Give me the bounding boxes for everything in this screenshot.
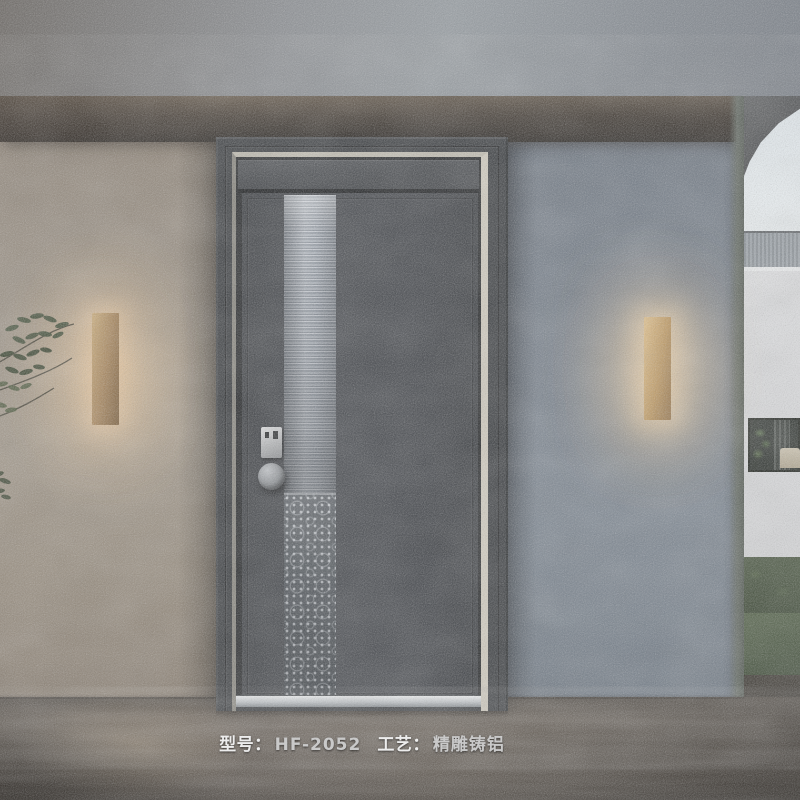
canopy-shadow-band <box>0 96 744 142</box>
caption: 型号：HF-2052工艺：精雕铸铝 <box>62 730 662 755</box>
craft-label: 工艺： <box>377 735 430 755</box>
transom-panel <box>238 160 479 189</box>
background-roofline <box>744 231 800 271</box>
background-house-wall <box>744 271 800 557</box>
craft-value: 精雕铸铝 <box>433 735 505 755</box>
threshold <box>236 695 481 707</box>
lock-slot <box>273 431 278 439</box>
window-plant <box>752 424 774 464</box>
entry-door-product-photo: 型号：HF-2052工艺：精雕铸铝 <box>0 0 800 800</box>
cast-pattern-panel <box>284 493 336 697</box>
porch-ceiling <box>0 0 800 98</box>
smart-lock <box>261 427 282 458</box>
door-knob <box>258 463 285 490</box>
model-value: HF-2052 <box>275 735 362 755</box>
window-sofa <box>780 448 800 468</box>
glass-strip <box>284 195 336 697</box>
wall-corner-edge <box>729 96 745 704</box>
ribbed-glass <box>284 195 336 493</box>
wall-sconce-right <box>644 317 671 420</box>
background-grass <box>744 613 800 677</box>
door-leaf <box>242 193 478 699</box>
background-hedge <box>744 557 800 615</box>
lock-slot <box>265 432 269 438</box>
background-window <box>748 418 800 472</box>
door-frame <box>216 137 508 711</box>
tree-branches <box>0 268 142 528</box>
door-opening <box>236 157 481 707</box>
model-label: 型号： <box>219 735 272 755</box>
